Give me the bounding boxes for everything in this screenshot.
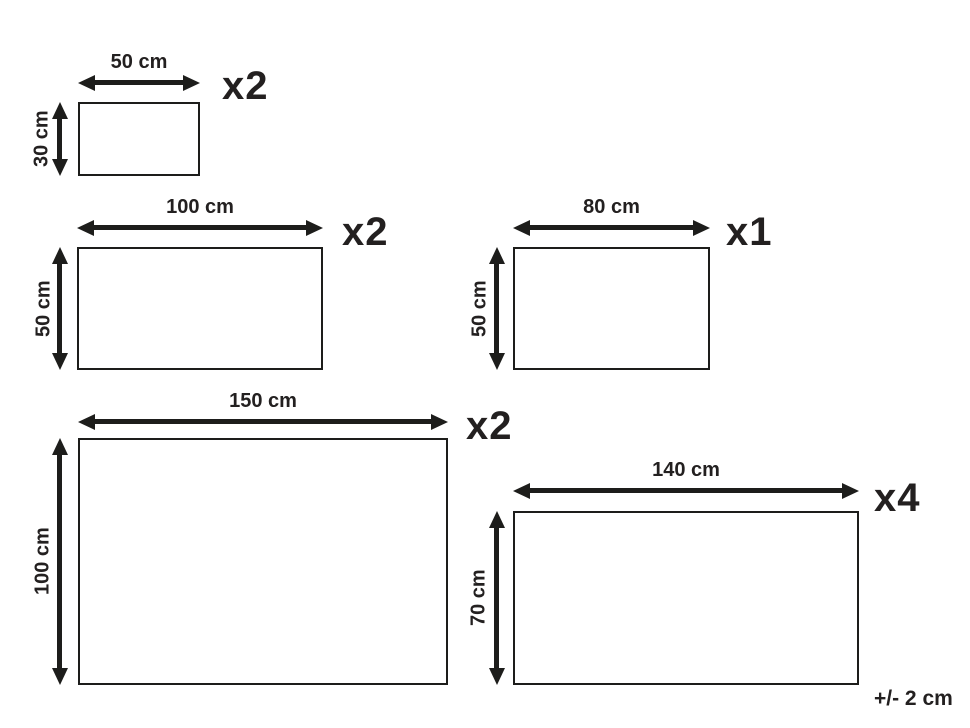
width-arrow-icon [77, 220, 323, 236]
width-dimension-label: 100 cm [77, 196, 323, 218]
arrow-shaft [57, 115, 62, 163]
arrow-shaft [526, 225, 697, 230]
arrow-shaft [90, 225, 310, 230]
arrow-shaft [526, 488, 846, 493]
size-figure-140x70: 140 cm 70 cm x4 [0, 0, 970, 728]
quantity-label: x1 [726, 212, 773, 252]
arrow-shaft [494, 524, 499, 672]
dimension-rectangle [77, 247, 323, 370]
height-arrow-icon [52, 247, 68, 370]
width-arrow-icon [78, 75, 200, 91]
height-dimension-label: 70 cm [466, 511, 492, 685]
size-figure-150x100: 150 cm 100 cm x2 [0, 0, 970, 728]
height-dimension-label: 100 cm [30, 438, 56, 685]
dimension-rectangle [78, 102, 200, 176]
quantity-label: x4 [874, 478, 921, 518]
dimension-rectangle [513, 247, 710, 370]
dimension-rectangle [78, 438, 448, 685]
quantity-label: x2 [222, 66, 269, 106]
arrow-shaft [91, 419, 435, 424]
height-arrow-icon [489, 247, 505, 370]
arrow-shaft [57, 451, 62, 672]
quantity-label: x2 [466, 406, 513, 446]
quantity-label: x2 [342, 212, 389, 252]
size-figure-100x50: 100 cm 50 cm x2 [0, 0, 970, 728]
size-figure-50x30: 50 cm 30 cm x2 [0, 0, 970, 728]
dimension-diagram: { "figures": [ { "name": "rectangle-50x3… [0, 0, 970, 728]
width-arrow-icon [513, 483, 859, 499]
arrow-shaft [494, 260, 499, 357]
height-arrow-icon [52, 438, 68, 685]
width-dimension-label: 150 cm [78, 390, 448, 412]
width-dimension-label: 140 cm [513, 459, 859, 481]
height-dimension-label: 50 cm [467, 247, 493, 370]
dimension-rectangle [513, 511, 859, 685]
height-arrow-icon [489, 511, 505, 685]
arrow-shaft [57, 260, 62, 357]
width-arrow-icon [78, 414, 448, 430]
height-arrow-icon [52, 102, 68, 176]
width-dimension-label: 50 cm [58, 51, 220, 73]
arrow-shaft [91, 80, 187, 85]
height-dimension-label: 50 cm [31, 247, 57, 370]
width-arrow-icon [513, 220, 710, 236]
height-dimension-label: 30 cm [29, 102, 55, 176]
tolerance-note: +/- 2 cm [874, 687, 953, 711]
size-figure-80x50: 80 cm 50 cm x1 [0, 0, 970, 728]
width-dimension-label: 80 cm [513, 196, 710, 218]
